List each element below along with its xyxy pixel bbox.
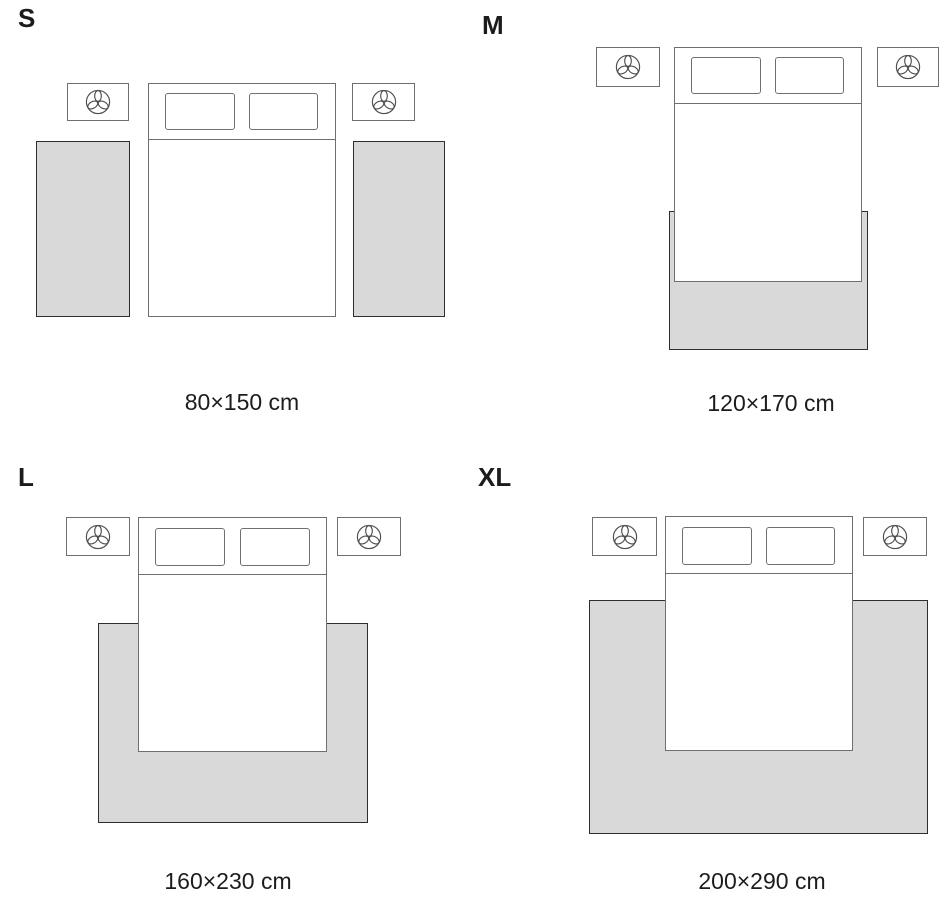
bed-headboard	[675, 48, 861, 104]
nightstand-right	[877, 47, 939, 87]
size-card-l: L 160×230 cm	[0, 450, 475, 900]
size-caption-s: 80×150 cm	[122, 388, 362, 416]
size-caption-xl: 200×290 cm	[642, 867, 882, 895]
pillow-right	[775, 57, 844, 94]
bed-headboard	[666, 517, 852, 574]
pillow-right	[240, 528, 310, 566]
bed-headboard	[149, 84, 335, 140]
bed	[138, 517, 327, 752]
nightstand-left	[596, 47, 660, 87]
size-label-s: S	[18, 5, 35, 31]
nightstand-right	[352, 83, 415, 121]
plant-icon	[891, 50, 925, 84]
size-card-m: M 120×170 cm	[475, 0, 950, 450]
plant-icon	[878, 520, 912, 554]
size-caption-m: 120×170 cm	[651, 389, 891, 417]
nightstand-left	[67, 83, 129, 121]
rug-size-guide: S 80×150 cm	[0, 0, 950, 900]
size-caption-l: 160×230 cm	[108, 867, 348, 895]
nightstand-left	[66, 517, 130, 556]
size-card-xl: XL 200×290 cm	[475, 450, 950, 900]
size-label-m: M	[482, 12, 504, 38]
pillow-left	[155, 528, 225, 566]
size-label-xl: XL	[478, 464, 511, 490]
pillow-left	[682, 527, 752, 565]
nightstand-right	[863, 517, 927, 556]
plant-icon	[367, 85, 401, 119]
size-card-s: S 80×150 cm	[0, 0, 475, 450]
bed	[148, 83, 336, 317]
plant-icon	[608, 520, 642, 554]
pillow-right	[249, 93, 318, 130]
pillow-right	[766, 527, 835, 565]
plant-icon	[81, 520, 115, 554]
size-label-l: L	[18, 464, 34, 490]
bed	[674, 47, 862, 282]
plant-icon	[611, 50, 645, 84]
nightstand-right	[337, 517, 401, 556]
pillow-left	[691, 57, 761, 94]
rug-left-runner	[36, 141, 130, 317]
plant-icon	[352, 520, 386, 554]
plant-icon	[81, 85, 115, 119]
nightstand-left	[592, 517, 657, 556]
bed-headboard	[139, 518, 326, 575]
pillow-left	[165, 93, 235, 130]
bed	[665, 516, 853, 751]
rug-right-runner	[353, 141, 445, 317]
